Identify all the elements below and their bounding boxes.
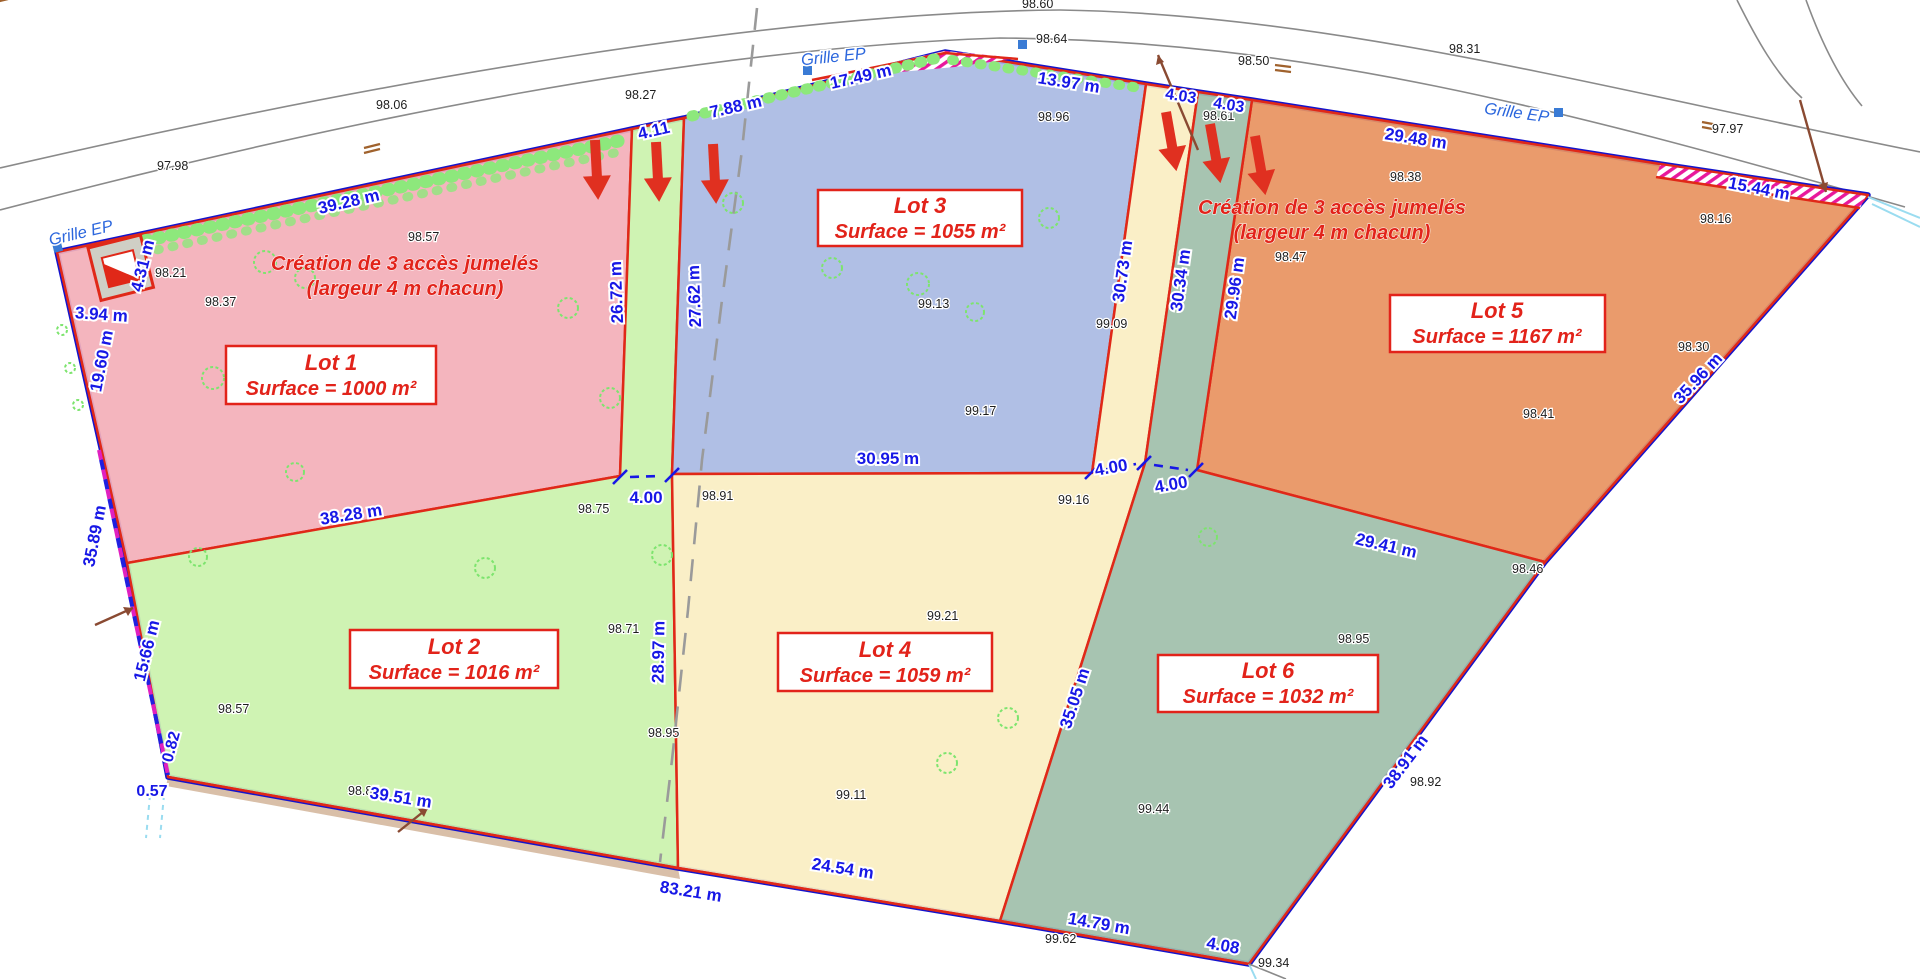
grille-ep-label: Grille EP <box>800 45 867 70</box>
svg-text:98.57: 98.57 <box>218 702 249 716</box>
svg-text:Surface = 1032 m²: Surface = 1032 m² <box>1183 686 1355 708</box>
svg-text:4.00: 4.00 <box>629 488 662 507</box>
svg-text:83.21 m: 83.21 m <box>659 877 724 906</box>
lot3-area[interactable] <box>672 52 1146 474</box>
svg-text:Surface = 1055 m²: Surface = 1055 m² <box>835 221 1007 243</box>
svg-text:98.41: 98.41 <box>1523 407 1554 421</box>
svg-text:Lot 1: Lot 1 <box>305 350 358 375</box>
lot3-label-box[interactable]: Lot 3 Surface = 1055 m² <box>818 190 1022 246</box>
svg-text:Surface = 1059 m²: Surface = 1059 m² <box>800 665 972 687</box>
svg-text:98.46: 98.46 <box>1512 562 1543 576</box>
svg-text:Surface = 1000 m²: Surface = 1000 m² <box>246 378 418 400</box>
svg-text:99.17: 99.17 <box>965 404 996 418</box>
svg-text:98.64: 98.64 <box>1036 32 1067 46</box>
svg-text:98.92: 98.92 <box>1410 775 1441 789</box>
svg-text:0.57: 0.57 <box>136 783 167 800</box>
svg-text:98.37: 98.37 <box>205 295 236 309</box>
svg-text:(largeur 4 m chacun): (largeur 4 m chacun) <box>307 278 504 300</box>
lot4-label-box[interactable]: Lot 4 Surface = 1059 m² <box>778 633 992 691</box>
lot1-label-box[interactable]: Lot 1 Surface = 1000 m² <box>226 346 436 404</box>
svg-text:99.62: 99.62 <box>1045 932 1076 946</box>
svg-text:98.06: 98.06 <box>376 98 407 112</box>
svg-text:Lot 5: Lot 5 <box>1471 298 1524 323</box>
svg-text:27.62 m: 27.62 m <box>684 265 705 328</box>
subdivision-plan: 97.98 98.06 98.27 98.64 98.50 98.31 98.6… <box>0 0 1920 979</box>
svg-text:Lot 6: Lot 6 <box>1242 658 1295 683</box>
svg-text:Surface = 1016 m²: Surface = 1016 m² <box>369 662 541 684</box>
svg-text:97.98: 97.98 <box>157 159 188 173</box>
svg-text:Création de 3 accès jumelés: Création de 3 accès jumelés <box>1198 197 1466 219</box>
lot6-label-box[interactable]: Lot 6 Surface = 1032 m² <box>1158 655 1378 712</box>
svg-text:98.96: 98.96 <box>1038 110 1069 124</box>
svg-text:99.09: 99.09 <box>1096 317 1127 331</box>
svg-text:99.34: 99.34 <box>1258 956 1289 970</box>
svg-text:98.38: 98.38 <box>1390 170 1421 184</box>
svg-text:98.60: 98.60 <box>1022 0 1053 11</box>
lot2-label-box[interactable]: Lot 2 Surface = 1016 m² <box>350 630 558 688</box>
svg-text:97.97: 97.97 <box>1712 122 1743 136</box>
svg-text:98.31: 98.31 <box>1449 42 1480 56</box>
svg-text:99.21: 99.21 <box>927 609 958 623</box>
svg-text:98.21: 98.21 <box>155 266 186 280</box>
svg-text:98.75: 98.75 <box>578 502 609 516</box>
svg-text:Lot 3: Lot 3 <box>894 193 947 218</box>
svg-text:26.72 m: 26.72 m <box>606 261 627 324</box>
svg-text:28.97 m: 28.97 m <box>648 621 668 684</box>
grille-ep-label: Grille EP <box>1483 100 1550 127</box>
svg-text:98.30: 98.30 <box>1678 340 1709 354</box>
svg-text:98.27: 98.27 <box>625 88 656 102</box>
svg-text:99.16: 99.16 <box>1058 493 1089 507</box>
svg-text:(largeur 4 m chacun): (largeur 4 m chacun) <box>1234 222 1431 244</box>
plan-canvas: 97.98 98.06 98.27 98.64 98.50 98.31 98.6… <box>0 0 1920 979</box>
svg-text:99.13: 99.13 <box>918 297 949 311</box>
svg-text:98.71: 98.71 <box>608 622 639 636</box>
svg-text:98.47: 98.47 <box>1275 250 1306 264</box>
svg-text:Création de 3 accès jumelés: Création de 3 accès jumelés <box>271 253 539 275</box>
svg-text:99.11: 99.11 <box>836 788 866 802</box>
svg-text:Lot 4: Lot 4 <box>859 637 912 662</box>
svg-text:3.94 m: 3.94 m <box>74 303 128 326</box>
svg-text:98.91: 98.91 <box>702 489 733 503</box>
svg-text:Surface = 1167 m²: Surface = 1167 m² <box>1412 326 1583 348</box>
svg-text:98.57: 98.57 <box>408 230 439 244</box>
svg-text:98.95: 98.95 <box>1338 632 1369 646</box>
svg-text:35.89 m: 35.89 m <box>79 504 110 569</box>
svg-text:98.16: 98.16 <box>1700 212 1731 226</box>
svg-text:98.95: 98.95 <box>648 726 679 740</box>
svg-text:99.44: 99.44 <box>1138 802 1169 816</box>
svg-text:30.95 m: 30.95 m <box>857 449 919 468</box>
svg-text:98.50: 98.50 <box>1238 54 1269 68</box>
svg-text:Lot 2: Lot 2 <box>428 634 481 659</box>
lot5-label-box[interactable]: Lot 5 Surface = 1167 m² <box>1390 295 1605 352</box>
